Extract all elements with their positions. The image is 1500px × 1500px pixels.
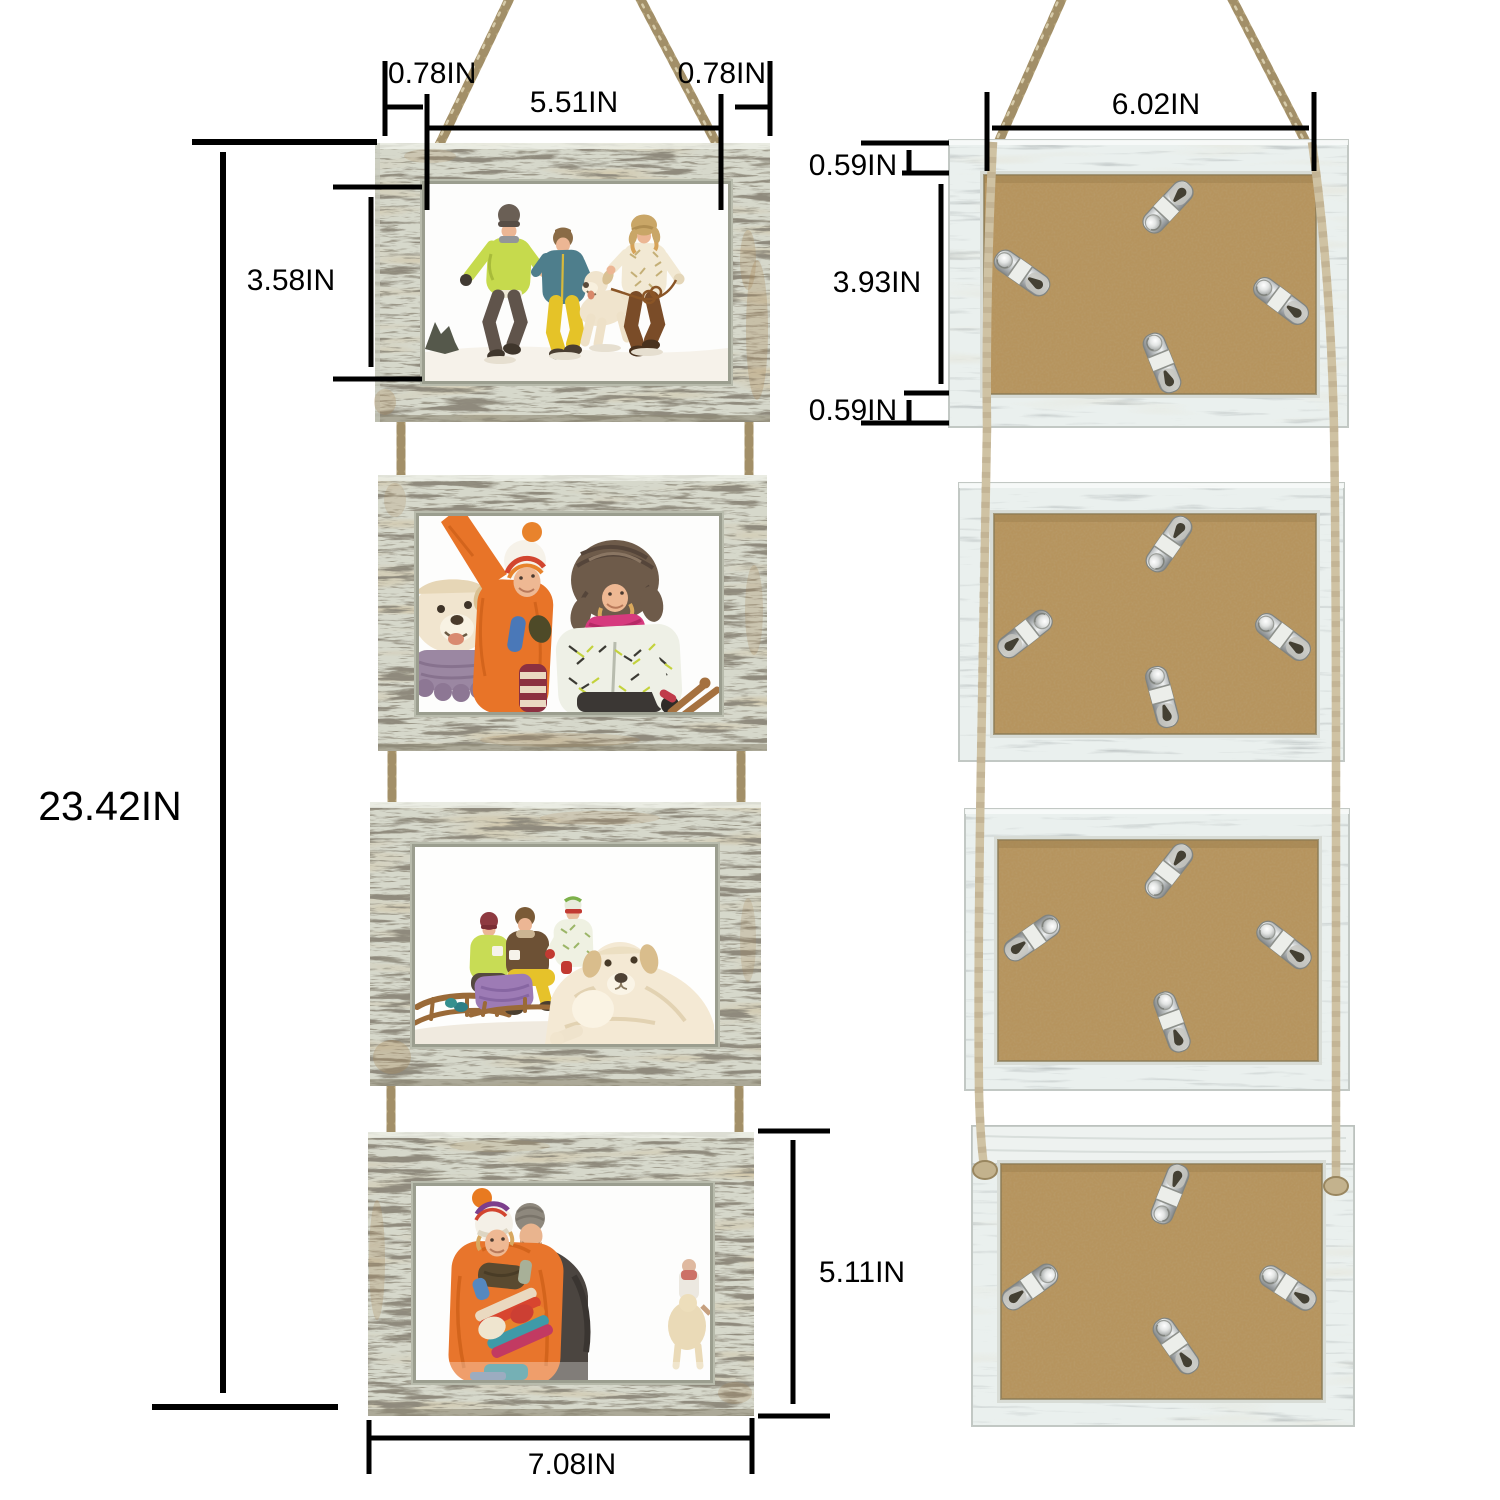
svg-text:3.93IN: 3.93IN — [833, 266, 921, 299]
svg-text:3.58IN: 3.58IN — [247, 264, 335, 297]
svg-text:5.11IN: 5.11IN — [819, 1256, 905, 1289]
svg-text:5.51IN: 5.51IN — [530, 86, 618, 119]
svg-text:0.59IN: 0.59IN — [809, 149, 897, 182]
svg-text:0.59IN: 0.59IN — [809, 394, 897, 427]
svg-text:0.78IN: 0.78IN — [678, 57, 766, 90]
svg-text:6.02IN: 6.02IN — [1112, 88, 1200, 121]
svg-text:7.08IN: 7.08IN — [528, 1448, 616, 1481]
svg-text:23.42IN: 23.42IN — [38, 783, 182, 829]
svg-text:0.78IN: 0.78IN — [388, 57, 476, 90]
